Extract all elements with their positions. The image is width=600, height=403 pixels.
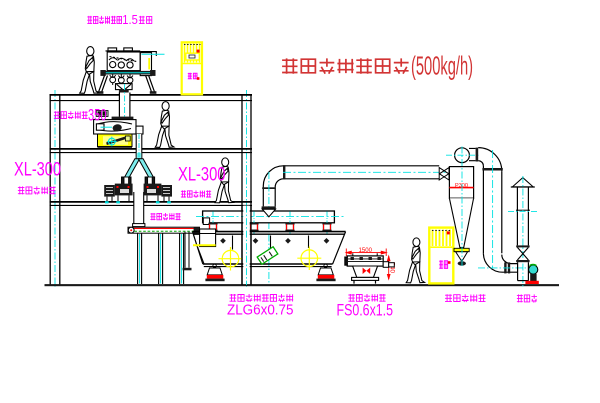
- svg-text:P300: P300: [455, 183, 468, 189]
- svg-text:ZLG6x0.75: ZLG6x0.75: [227, 303, 294, 319]
- svg-text:FS0.6x1.5: FS0.6x1.5: [337, 300, 394, 319]
- svg-text:XL-300: XL-300: [178, 164, 226, 186]
- svg-text:XL-300: XL-300: [14, 159, 61, 181]
- svg-text:1.5: 1.5: [122, 12, 138, 27]
- svg-text:350: 350: [88, 105, 107, 124]
- svg-text:(500kg/h): (500kg/h): [411, 51, 473, 81]
- svg-text:1500: 1500: [359, 247, 373, 254]
